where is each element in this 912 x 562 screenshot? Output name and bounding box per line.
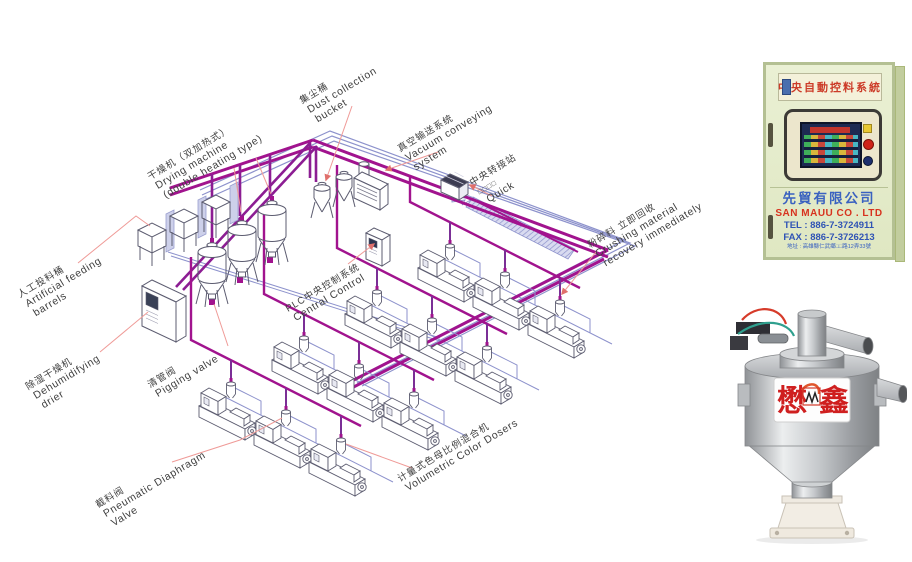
cabinet-banner: 中央自動控料系統: [778, 73, 882, 101]
label-dust-collection: 集尘桶 Dust collection bucket: [297, 55, 385, 127]
banner-logo-tag: [782, 79, 791, 95]
brochure-page: 人工投料桶 Artificial feeding barrels 干燥机（双加热…: [0, 0, 912, 562]
door-seam: [770, 187, 888, 188]
drying-hopper: [256, 196, 288, 265]
label-vacuum-conveying: 真空输送系统 Vacuum conveying system: [395, 92, 500, 175]
brand-char-right: 鑫: [819, 384, 849, 418]
company-address: 地址 : 高雄縣仁武鄉□□路12弄33號: [766, 244, 892, 251]
base-stand: [770, 496, 854, 538]
feeding-barrel: [138, 223, 166, 266]
screen-button-grid: [804, 135, 858, 163]
inlet-opening: [863, 338, 873, 355]
spout-opening: [899, 386, 908, 403]
hmi-panel: [784, 109, 882, 181]
cabinet-side-panel: [895, 66, 905, 262]
company-tel: TEL : 886-7-3724911: [766, 220, 892, 232]
label-dehumidifying: 除湿干燥机 Dehumidifying drier: [23, 342, 108, 413]
label-drying-machine: 干燥机（双加热式） Drying machine (double heating…: [145, 112, 264, 203]
control-cabinet-photo: 中央自動控料系統 先貿有限公司 SAN MAUU CO . LTD TEL : …: [753, 50, 905, 265]
pneumatic-assembly: [730, 309, 794, 350]
label-artificial-feeding: 人工投料桶 Artificial feeding barrels: [15, 245, 110, 322]
red-button: [863, 139, 874, 150]
discharge-section: [747, 444, 877, 498]
svg-text:Pneumatic Diaphragm: Pneumatic Diaphragm: [101, 449, 208, 520]
equipment: [138, 162, 590, 496]
screen-title-bar: [810, 127, 850, 133]
touch-screen: [800, 122, 862, 168]
system-diagram: 人工投料桶 Artificial feeding barrels 干燥机（双加热…: [0, 0, 730, 562]
label-volumetric-doser: 计量式色母比例混合机 Volumetric Color Dosers: [395, 407, 520, 495]
recovery-duct: [452, 193, 578, 259]
red-air-tube: [742, 309, 786, 324]
label-pneumatic-valve: 截料阀 Pneumatic Diaphragm Valve: [93, 439, 214, 531]
dehumidifying-drier: [142, 280, 186, 342]
diagram-labels: 人工投料桶 Artificial feeding barrels 干燥机（双加热…: [15, 55, 704, 531]
company-name-en: SAN MAUU CO . LTD: [766, 208, 892, 221]
banner-text: 中央自動控料系統: [778, 79, 882, 95]
hinge: [768, 123, 773, 147]
hopper-loader-photo: 懋 鑫: [722, 306, 907, 546]
cabinet-body: 中央自動控料系統 先貿有限公司 SAN MAUU CO . LTD TEL : …: [763, 62, 895, 260]
dust-collector: [311, 182, 333, 218]
company-name-zh: 先貿有限公司: [766, 191, 892, 208]
yellow-indicator-light: [863, 124, 872, 133]
blue-button: [863, 156, 873, 166]
company-fax: FAX : 886-7-3726213: [766, 232, 892, 244]
clamp-left: [738, 384, 750, 406]
brand-label: 懋 鑫: [774, 378, 850, 422]
label-crushing-recovery: 粉碎料 立即回收 Crushing material recovery imme…: [585, 180, 704, 271]
company-info: 先貿有限公司 SAN MAUU CO . LTD TEL : 886-7-372…: [766, 191, 892, 251]
